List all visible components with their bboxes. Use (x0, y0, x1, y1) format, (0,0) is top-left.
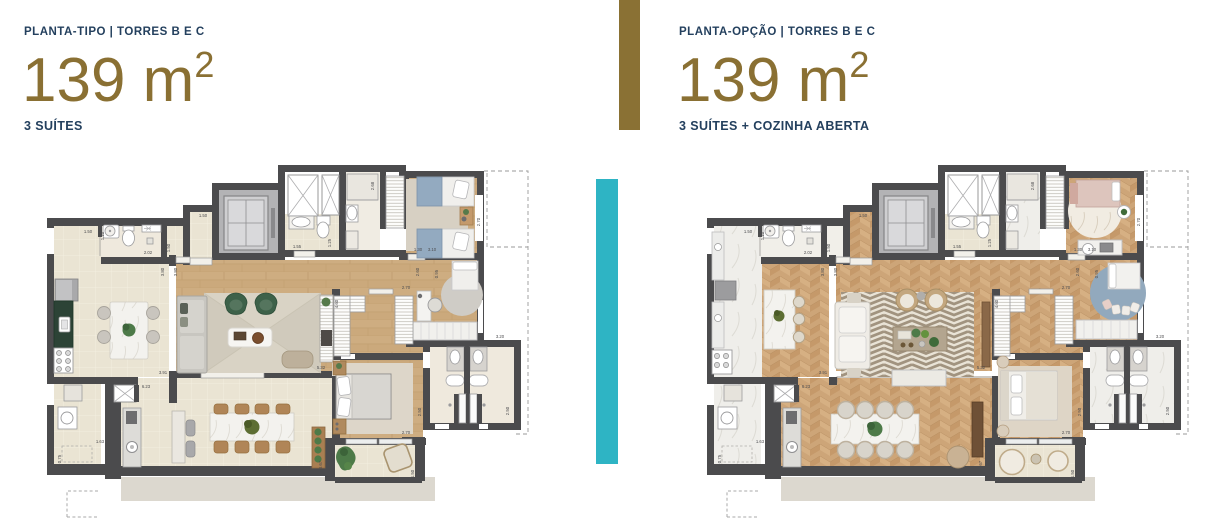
svg-text:PLANTA-TIPO | TORRES B E C: PLANTA-TIPO | TORRES B E C (24, 26, 205, 38)
svg-text:1.63: 1.63 (96, 439, 105, 444)
svg-text:2.70: 2.70 (476, 217, 481, 226)
svg-text:2.68: 2.68 (370, 181, 375, 190)
svg-text:1.50: 1.50 (1070, 469, 1075, 478)
svg-text:0.95: 0.95 (1094, 269, 1099, 278)
svg-text:1.50: 1.50 (166, 243, 171, 252)
svg-text:2.60: 2.60 (415, 267, 420, 276)
svg-text:1.39: 1.39 (1162, 341, 1171, 346)
svg-text:1.50: 1.50 (826, 243, 831, 252)
svg-text:139 m2: 139 m2 (677, 44, 869, 115)
svg-text:1.50: 1.50 (410, 469, 415, 478)
svg-text:1.62: 1.62 (419, 341, 428, 346)
svg-text:3.20: 3.20 (1156, 334, 1165, 339)
svg-text:139 m2: 139 m2 (22, 44, 214, 115)
svg-text:2.50: 2.50 (505, 406, 510, 415)
svg-text:1.30: 1.30 (1074, 247, 1083, 252)
svg-text:4.60: 4.60 (334, 299, 339, 308)
svg-text:3.80: 3.80 (160, 267, 165, 276)
svg-text:3.10: 3.10 (1088, 247, 1097, 252)
svg-text:1.10: 1.10 (100, 231, 105, 240)
svg-text:2.60: 2.60 (1075, 267, 1080, 276)
svg-text:PLANTA-OPÇÃO | TORRES B E C: PLANTA-OPÇÃO | TORRES B E C (679, 25, 875, 38)
svg-text:3.67: 3.67 (318, 460, 323, 469)
svg-text:2.70: 2.70 (1062, 285, 1071, 290)
svg-text:2.86: 2.86 (997, 476, 1006, 481)
svg-text:6.23: 6.23 (802, 384, 811, 389)
svg-text:2.86: 2.86 (337, 476, 346, 481)
svg-text:2.02: 2.02 (804, 250, 813, 255)
svg-text:2.70: 2.70 (1136, 217, 1141, 226)
svg-text:3.67: 3.67 (978, 460, 983, 469)
svg-text:5.32: 5.32 (317, 365, 326, 370)
svg-text:2.02: 2.02 (144, 250, 153, 255)
svg-text:2.70: 2.70 (1062, 430, 1071, 435)
svg-text:1.50: 1.50 (199, 213, 208, 218)
svg-text:3.91: 3.91 (819, 370, 828, 375)
svg-text:4.60: 4.60 (994, 299, 999, 308)
svg-text:3 SUÍTES + COZINHA ABERTA: 3 SUÍTES + COZINHA ABERTA (679, 118, 869, 133)
svg-text:3.20: 3.20 (496, 334, 505, 339)
svg-text:2.50: 2.50 (1077, 407, 1082, 416)
svg-text:3 SUÍTES: 3 SUÍTES (24, 118, 83, 133)
svg-text:1.62: 1.62 (1079, 341, 1088, 346)
svg-text:2.70: 2.70 (402, 430, 411, 435)
svg-text:1.55: 1.55 (953, 244, 962, 249)
svg-text:6.23: 6.23 (142, 384, 151, 389)
svg-text:2.70: 2.70 (402, 285, 411, 290)
svg-text:1.50: 1.50 (84, 229, 93, 234)
svg-text:1.63: 1.63 (756, 439, 765, 444)
svg-text:2.50: 2.50 (1165, 406, 1170, 415)
svg-text:2.68: 2.68 (1030, 181, 1035, 190)
svg-text:1.10: 1.10 (760, 231, 765, 240)
svg-text:5.32: 5.32 (977, 365, 986, 370)
svg-text:1.50: 1.50 (744, 229, 753, 234)
svg-text:0.95: 0.95 (434, 269, 439, 278)
svg-text:2.50: 2.50 (417, 407, 422, 416)
svg-text:6.93: 6.93 (786, 468, 795, 473)
svg-text:0.75: 0.75 (717, 454, 722, 463)
svg-text:1.50: 1.50 (859, 213, 868, 218)
svg-text:3.80: 3.80 (820, 267, 825, 276)
svg-text:1.55: 1.55 (293, 244, 302, 249)
svg-text:6.93: 6.93 (126, 468, 135, 473)
svg-text:3.80: 3.80 (173, 267, 178, 276)
svg-text:1.25: 1.25 (987, 238, 992, 247)
svg-text:3.10: 3.10 (428, 247, 437, 252)
svg-text:3.80: 3.80 (833, 267, 838, 276)
svg-text:3.91: 3.91 (159, 370, 168, 375)
svg-text:0.75: 0.75 (57, 454, 62, 463)
svg-text:1.25: 1.25 (327, 238, 332, 247)
svg-text:1.39: 1.39 (502, 341, 511, 346)
svg-text:1.30: 1.30 (414, 247, 423, 252)
